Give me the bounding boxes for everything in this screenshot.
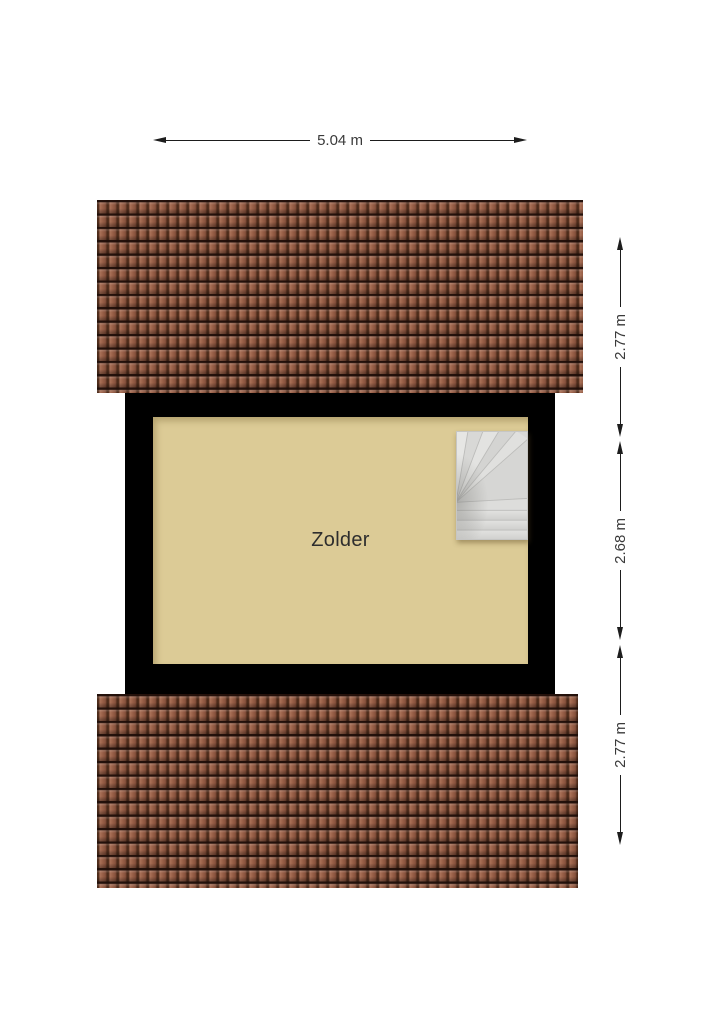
dimension-label: 2.77 m	[612, 307, 629, 367]
dimension-width: 5.04 m	[153, 133, 527, 147]
arrowhead-down-icon	[617, 424, 623, 437]
arrowhead-left-icon	[153, 137, 166, 143]
dimension-width-label: 5.04 m	[310, 132, 370, 149]
dimension-line	[166, 140, 310, 141]
dimension-line	[620, 454, 621, 511]
roof-top	[97, 200, 583, 393]
room-floor: Zolder	[153, 417, 528, 664]
dimension-room-height: 2.68 m	[612, 441, 628, 640]
dimension-roof-top-height: 2.77 m	[612, 237, 628, 437]
staircase-icon	[456, 431, 528, 540]
arrowhead-up-icon	[617, 441, 623, 454]
dimension-line	[620, 570, 621, 627]
dimension-label: 2.77 m	[612, 715, 629, 775]
dimension-label: 2.68 m	[612, 511, 629, 571]
dimension-roof-bottom-height: 2.77 m	[612, 645, 628, 845]
arrowhead-down-icon	[617, 832, 623, 845]
arrowhead-down-icon	[617, 627, 623, 640]
roof-bottom	[97, 694, 578, 888]
room-label: Zolder	[311, 529, 370, 552]
arrowhead-up-icon	[617, 237, 623, 250]
dimension-line	[620, 367, 621, 424]
arrowhead-right-icon	[514, 137, 527, 143]
dimension-line	[620, 250, 621, 307]
dimension-line	[620, 658, 621, 715]
floor-plan-canvas: 5.04 m Zolder	[0, 0, 724, 1024]
dimension-line	[620, 775, 621, 832]
dimension-line	[370, 140, 514, 141]
arrowhead-up-icon	[617, 645, 623, 658]
